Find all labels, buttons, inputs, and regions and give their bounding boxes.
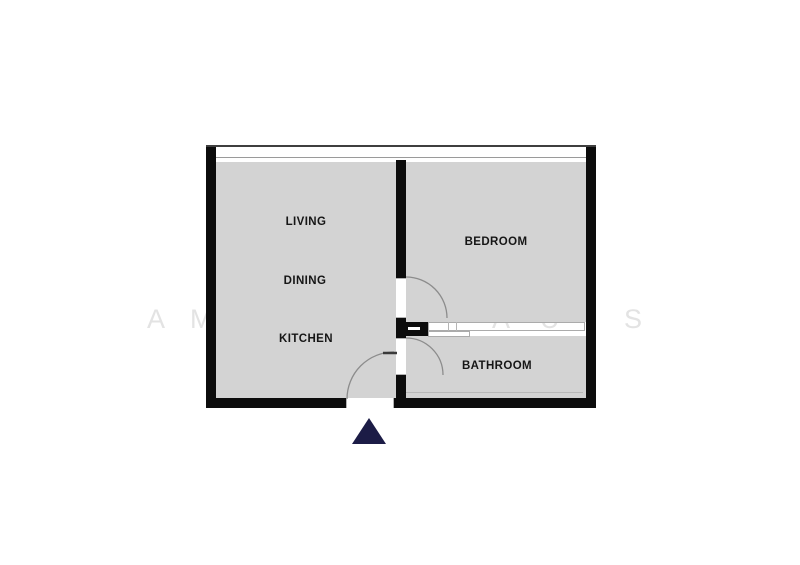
room-label-bedroom: BEDROOM	[465, 236, 528, 248]
room-label-living: LIVING	[286, 216, 327, 228]
room-label-bathroom: BATHROOM	[462, 360, 532, 372]
entrance-marker-icon	[352, 418, 386, 444]
door-opening-bedroom	[396, 278, 406, 318]
builtin-strip-lower	[428, 331, 470, 337]
door-opening-bathroom	[396, 338, 406, 375]
wall-partition-lower	[396, 375, 406, 408]
bathroom-fixture-line	[406, 392, 583, 393]
wall-bottom-left	[206, 398, 346, 408]
watermark-letter: S	[624, 306, 642, 333]
builtin-strip-divider	[448, 322, 449, 331]
room-label-kitchen: KITCHEN	[279, 333, 333, 345]
wall-left	[206, 147, 216, 408]
floorplan-canvas: A M A U S LIVING DINING KITCHEN BEDROOM …	[0, 0, 800, 565]
room-label-dining: DINING	[284, 275, 327, 287]
builtin-strip-divider	[456, 322, 457, 331]
wall-right	[586, 147, 596, 408]
door-opening-entrance	[346, 398, 394, 408]
watermark-letter: A	[147, 306, 165, 333]
wall-bottom-right	[394, 398, 596, 408]
wall-partition-upper	[396, 160, 406, 278]
window-inner-line	[216, 157, 586, 158]
wall-notch	[408, 327, 420, 330]
window-outer-line	[206, 145, 596, 147]
builtin-strip	[428, 322, 585, 331]
